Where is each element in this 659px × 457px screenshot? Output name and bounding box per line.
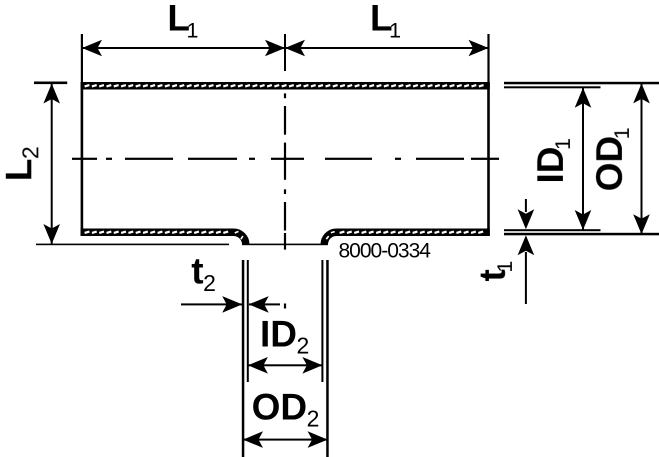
svg-text:L1: L1: [167, 0, 198, 43]
svg-text:ID1: ID1: [530, 138, 575, 183]
svg-text:t1: t1: [472, 261, 517, 282]
svg-text:OD2: OD2: [252, 386, 320, 431]
svg-text:L2: L2: [0, 146, 44, 181]
svg-text:8000-0334: 8000-0334: [339, 239, 432, 262]
svg-text:L1: L1: [370, 0, 401, 43]
svg-text:ID2: ID2: [260, 313, 309, 358]
svg-text:OD1: OD1: [589, 127, 634, 191]
svg-text:t2: t2: [191, 251, 216, 296]
